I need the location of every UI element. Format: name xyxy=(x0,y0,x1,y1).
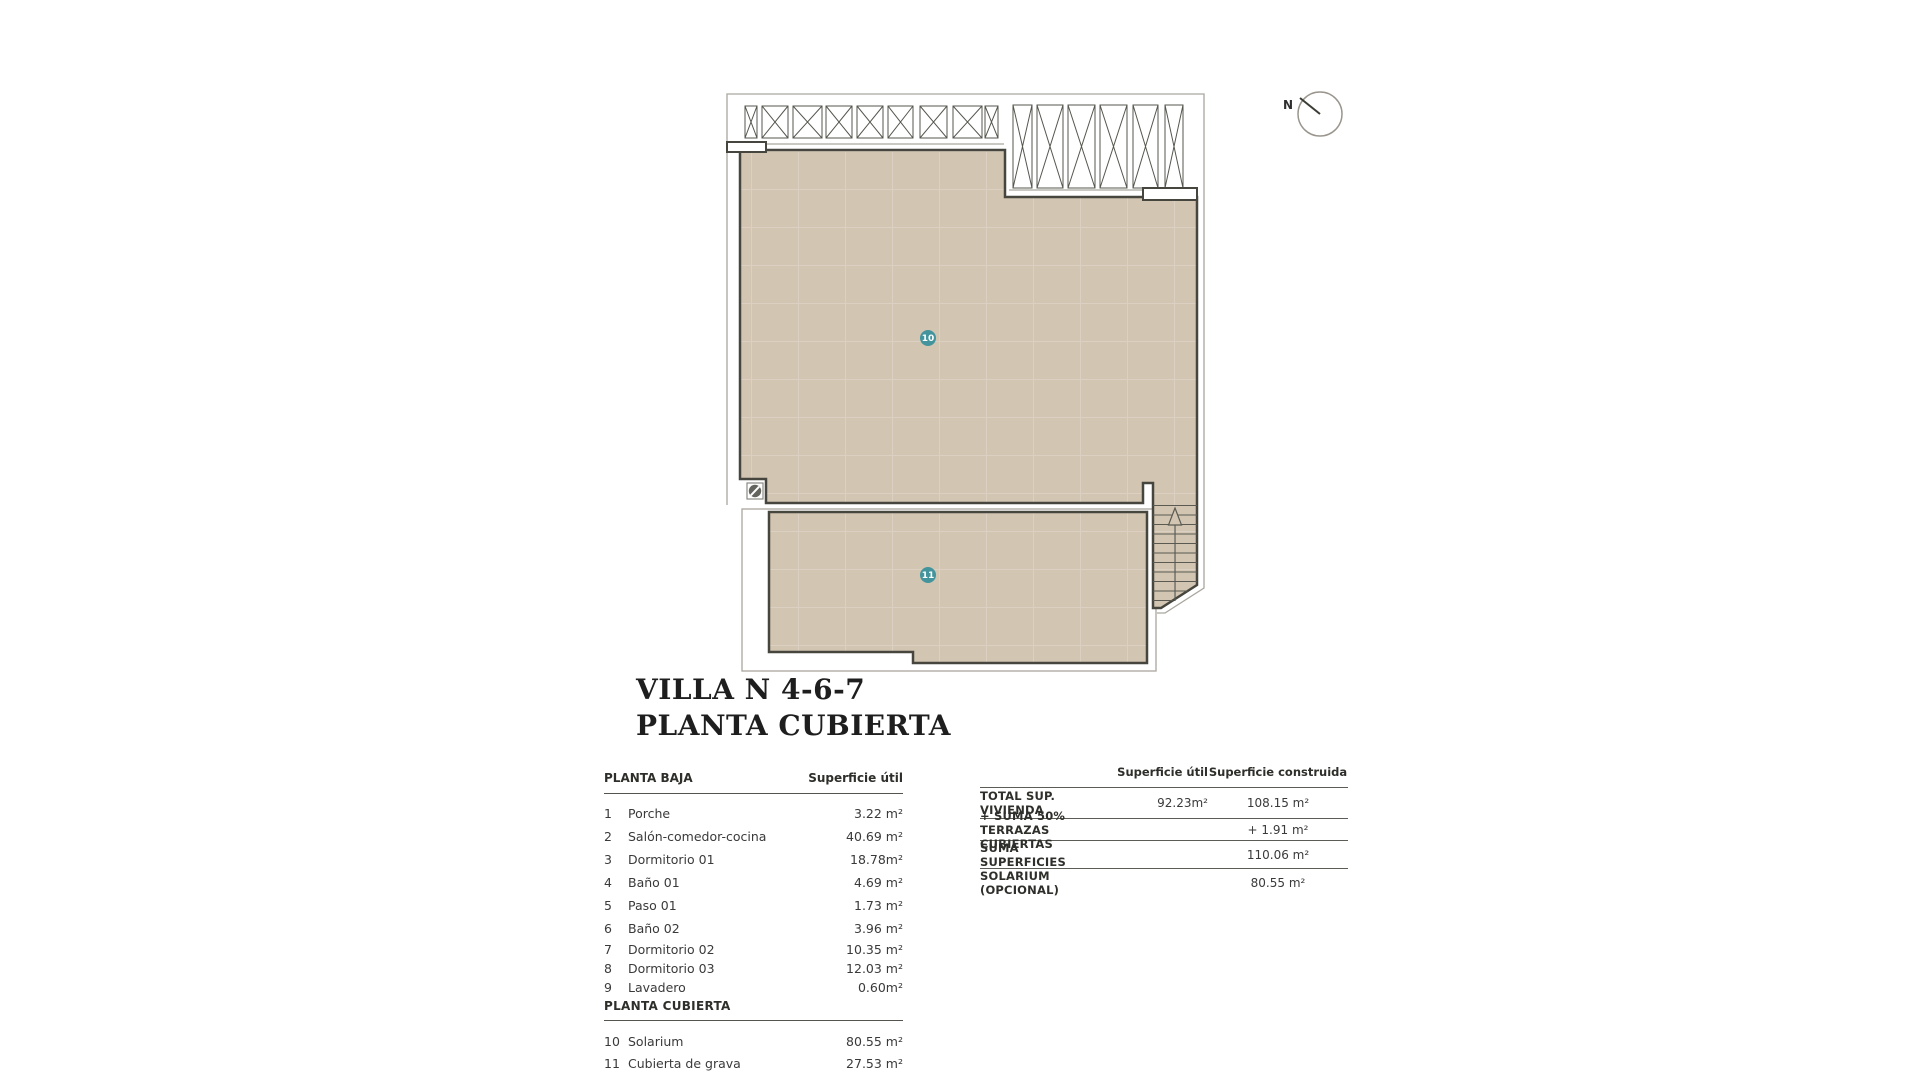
floor-plan-drawing: 10 11 N xyxy=(0,0,1920,1080)
room-area: 27.53 m² xyxy=(846,1056,903,1071)
summary-label: SUMA SUPERFICIES xyxy=(980,841,1078,869)
parapet-step-right xyxy=(1143,188,1197,200)
summary-row: SOLARIUM (OPCIONAL)80.55 m² xyxy=(980,869,1348,897)
section-header-planta-cubierta: PLANTA CUBIERTA xyxy=(604,999,903,1021)
row-number: 5 xyxy=(604,898,628,913)
room-name: Salón-comedor-cocina xyxy=(628,829,846,844)
gravel-roof-area xyxy=(769,512,1147,663)
row-number: 1 xyxy=(604,806,628,821)
table-row: 1Porche3.22 m² xyxy=(604,802,903,825)
row-number: 3 xyxy=(604,852,628,867)
room-area: 3.96 m² xyxy=(854,921,903,936)
svg-text:10: 10 xyxy=(922,334,935,344)
summary-label: SOLARIUM (OPCIONAL) xyxy=(980,869,1078,897)
room-name: Baño 01 xyxy=(628,875,854,890)
planta-cubierta-rows: 10Solarium80.55 m²11Cubierta de grava27.… xyxy=(604,1021,903,1074)
parapet-step-left xyxy=(727,142,766,152)
areas-table: PLANTA BAJA Superficie útil 1Porche3.22 … xyxy=(604,771,903,1074)
areas-table-header: PLANTA BAJA Superficie útil xyxy=(604,771,903,794)
row-number: 7 xyxy=(604,942,628,957)
room-area: 10.35 m² xyxy=(846,942,903,957)
plan-sheet: 10 11 N VILLA N 4-6-7 PLANTA CUBIERTA PL… xyxy=(0,0,1920,1080)
room-area: 12.03 m² xyxy=(846,961,903,976)
room-name: Lavadero xyxy=(628,980,858,995)
title-line-1: VILLA N 4-6-7 xyxy=(636,672,951,708)
summary-rows: TOTAL SUP. VIVIENDA92.23m²108.15 m²+ SUM… xyxy=(980,788,1348,897)
svg-text:N: N xyxy=(1283,98,1293,112)
row-number: 11 xyxy=(604,1056,628,1071)
column-header-superficie-util: Superficie útil xyxy=(1078,765,1208,779)
room-area: 3.22 m² xyxy=(854,806,903,821)
summary-constr-value: 110.06 m² xyxy=(1208,848,1348,862)
svg-text:11: 11 xyxy=(922,571,935,581)
marker-solarium: 10 xyxy=(920,330,936,346)
summary-row: + SUMA 50% TERRAZAS CUBIERTAS+ 1.91 m² xyxy=(980,819,1348,841)
table-row: 7Dormitorio 0210.35 m² xyxy=(604,940,903,959)
marker-gravel-roof: 11 xyxy=(920,567,936,583)
row-number: 9 xyxy=(604,980,628,995)
summary-constr-value: + 1.91 m² xyxy=(1208,823,1348,837)
room-area: 4.69 m² xyxy=(854,875,903,890)
page-title: VILLA N 4-6-7 PLANTA CUBIERTA xyxy=(636,672,951,744)
row-number: 2 xyxy=(604,829,628,844)
drain-icon xyxy=(747,483,763,499)
summary-row: SUMA SUPERFICIES110.06 m² xyxy=(980,841,1348,869)
room-name: Paso 01 xyxy=(628,898,854,913)
summary-constr-value: 108.15 m² xyxy=(1208,796,1348,810)
room-name: Dormitorio 01 xyxy=(628,852,850,867)
row-number: 4 xyxy=(604,875,628,890)
table-row: 9Lavadero0.60m² xyxy=(604,978,903,997)
table-row: 3Dormitorio 0118.78m² xyxy=(604,848,903,871)
summary-table-header: Superficie útil Superficie construida xyxy=(980,765,1348,788)
row-number: 6 xyxy=(604,921,628,936)
room-name: Dormitorio 02 xyxy=(628,942,846,957)
table-row: 2Salón-comedor-cocina40.69 m² xyxy=(604,825,903,848)
room-area: 1.73 m² xyxy=(854,898,903,913)
north-indicator: N xyxy=(1283,92,1342,136)
table-row: 11Cubierta de grava27.53 m² xyxy=(604,1052,903,1074)
row-number: 10 xyxy=(604,1034,628,1049)
table-row: 8Dormitorio 0312.03 m² xyxy=(604,959,903,978)
room-area: 0.60m² xyxy=(858,980,903,995)
column-header-superficie-construida: Superficie construida xyxy=(1208,765,1348,779)
title-line-2: PLANTA CUBIERTA xyxy=(636,708,951,744)
section-header-planta-baja: PLANTA BAJA xyxy=(604,771,693,785)
room-name: Cubierta de grava xyxy=(628,1056,846,1071)
table-row: 5Paso 011.73 m² xyxy=(604,894,903,917)
room-name: Porche xyxy=(628,806,854,821)
summary-constr-value: 80.55 m² xyxy=(1208,876,1348,890)
table-row: 6Baño 023.96 m² xyxy=(604,917,903,940)
row-number: 8 xyxy=(604,961,628,976)
column-header-superficie-util: Superficie útil xyxy=(808,771,903,785)
room-area: 80.55 m² xyxy=(846,1034,903,1049)
planta-baja-rows: 1Porche3.22 m²2Salón-comedor-cocina40.69… xyxy=(604,794,903,997)
summary-util-value: 92.23m² xyxy=(1078,796,1208,810)
table-row: 4Baño 014.69 m² xyxy=(604,871,903,894)
room-area: 40.69 m² xyxy=(846,829,903,844)
room-name: Baño 02 xyxy=(628,921,854,936)
table-row: 10Solarium80.55 m² xyxy=(604,1030,903,1052)
room-name: Dormitorio 03 xyxy=(628,961,846,976)
room-name: Solarium xyxy=(628,1034,846,1049)
room-area: 18.78m² xyxy=(850,852,903,867)
summary-table: Superficie útil Superficie construida TO… xyxy=(980,765,1348,897)
